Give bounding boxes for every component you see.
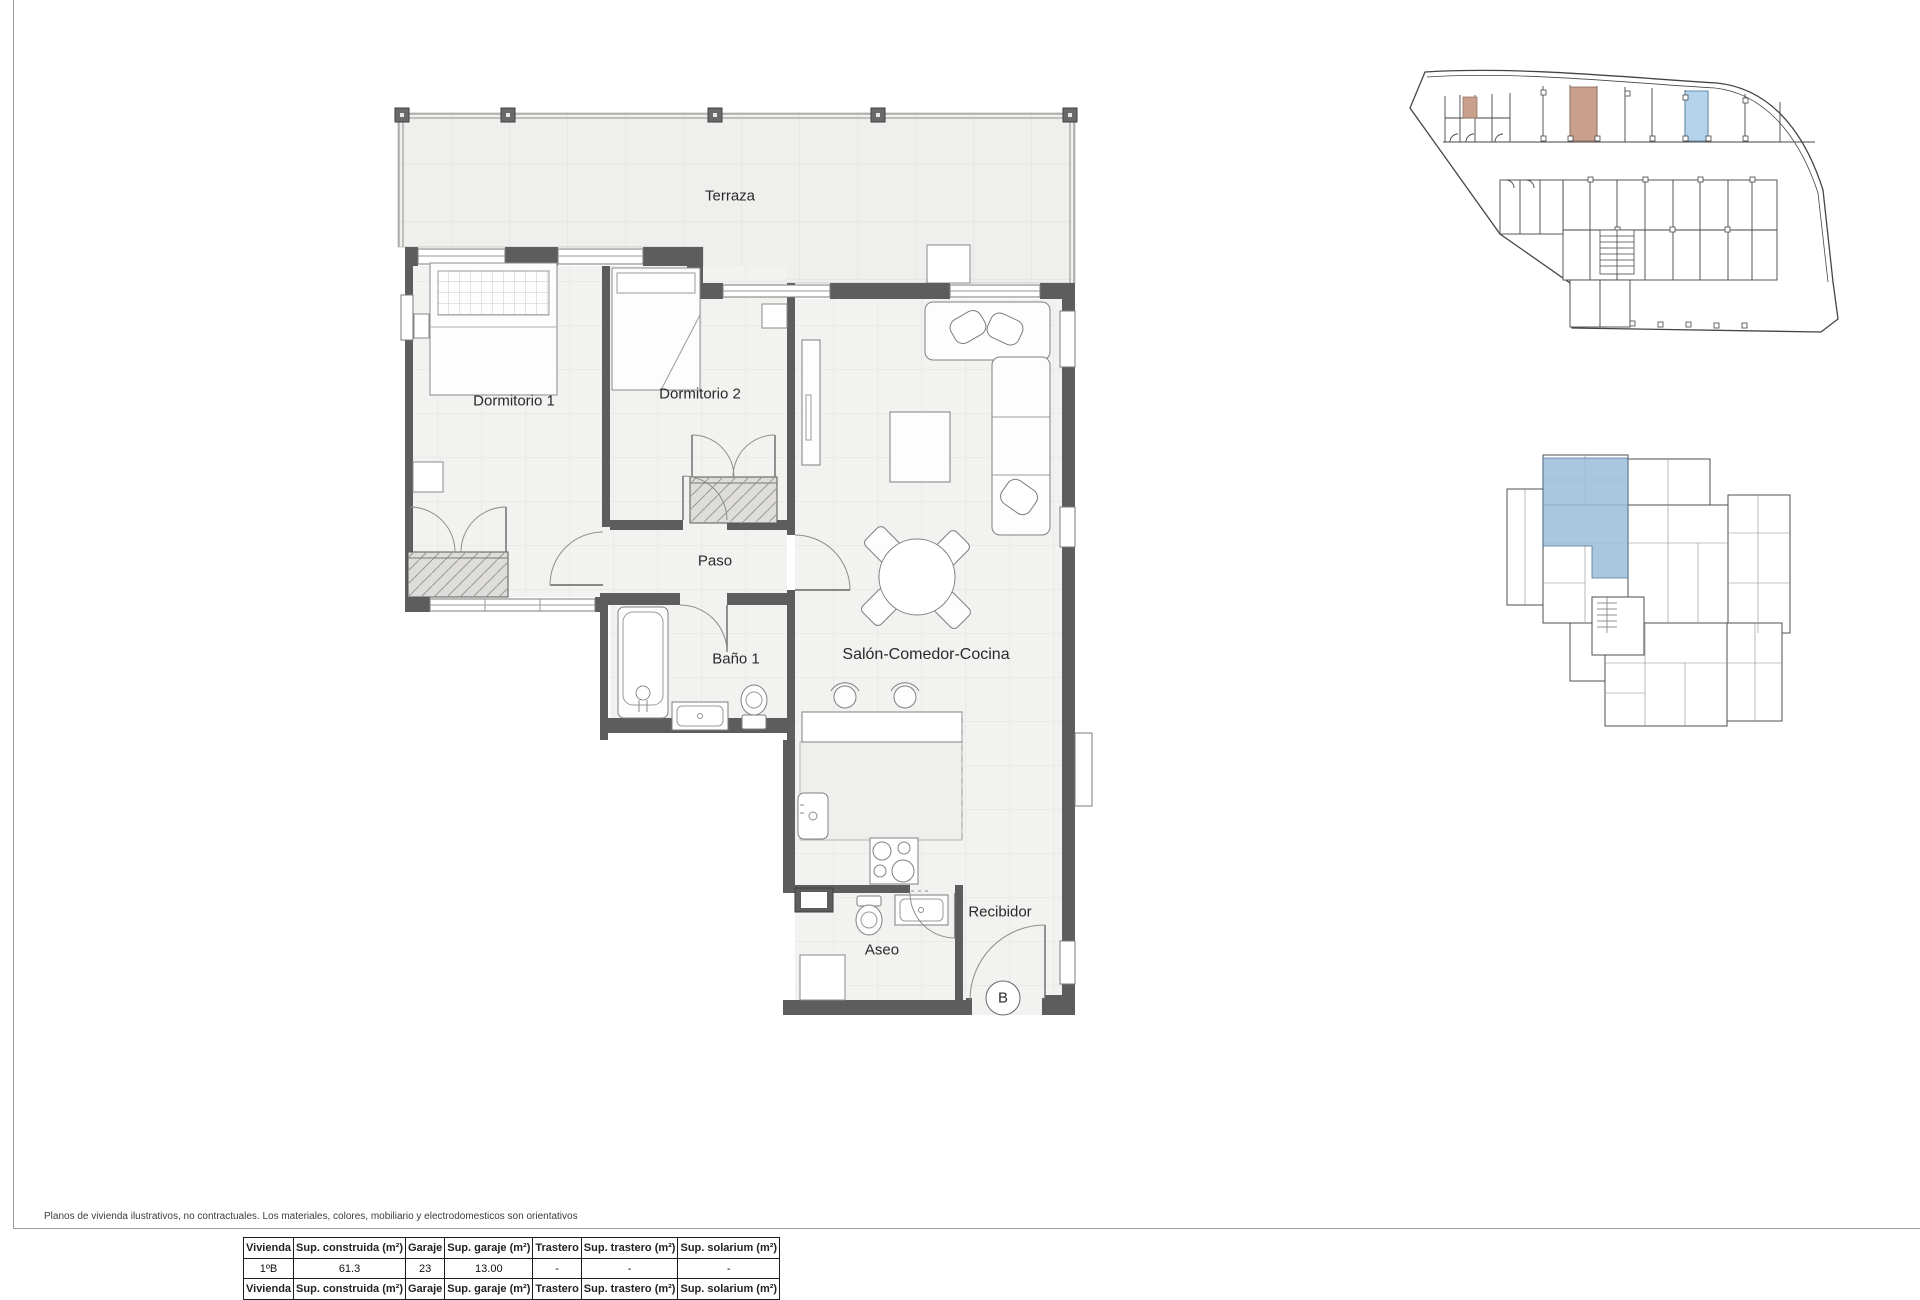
bath-sink xyxy=(672,702,728,730)
cell-vivienda: 1ºB xyxy=(244,1259,294,1279)
aseo-toilet xyxy=(856,896,882,935)
col2-garaje: Garaje xyxy=(406,1279,445,1300)
cooktop xyxy=(870,838,918,884)
tv-unit xyxy=(802,340,820,465)
label-dormitorio1: Dormitorio 1 xyxy=(473,393,555,410)
label-terraza: Terraza xyxy=(705,188,755,205)
garage-space-23-highlight xyxy=(1685,91,1708,141)
table-header-row-clipped: Vivienda Sup. construida (m²) Garaje Sup… xyxy=(244,1279,780,1300)
label-dormitorio2: Dormitorio 2 xyxy=(659,386,741,403)
garage-trastero-highlight xyxy=(1570,87,1597,141)
col2-trastero: Trastero xyxy=(533,1279,581,1300)
aseo-sink xyxy=(895,891,948,925)
sheet-frame-bottom xyxy=(13,1228,1920,1229)
dormitorio1-nightstand xyxy=(414,314,429,338)
dormitorio2-bed xyxy=(612,268,700,390)
col2-sup-solarium: Sup. solarium (m²) xyxy=(678,1279,780,1300)
cell-trastero: - xyxy=(533,1259,581,1279)
dormitorio2-nightstand xyxy=(762,304,787,328)
main-floor-plan: Terraza Dormitorio 1 Dormitorio 2 Paso B… xyxy=(393,105,1093,1045)
cell-sup-garaje: 13.00 xyxy=(445,1259,533,1279)
bathtub xyxy=(618,607,668,718)
coffee-table xyxy=(890,412,950,482)
col-garaje: Garaje xyxy=(406,1238,445,1259)
building-key-plan xyxy=(1495,447,1805,732)
cell-garaje: 23 xyxy=(406,1259,445,1279)
col2-vivienda: Vivienda xyxy=(244,1279,294,1300)
disclaimer-text: Planos de vivienda ilustrativos, no cont… xyxy=(44,1211,578,1222)
col-vivienda: Vivienda xyxy=(244,1238,294,1259)
garage-stairs xyxy=(1600,230,1634,274)
kitchen-sink xyxy=(798,793,828,839)
sheet-frame-left xyxy=(13,0,14,1229)
cell-sup-solarium: - xyxy=(678,1259,780,1279)
cell-sup-construida: 61.3 xyxy=(294,1259,406,1279)
terrace-pillar xyxy=(927,245,970,283)
col-trastero: Trastero xyxy=(533,1238,581,1259)
table-row: 1ºB 61.3 23 13.00 - - - xyxy=(244,1259,780,1279)
col-sup-trastero: Sup. trastero (m²) xyxy=(581,1238,678,1259)
col-sup-construida: Sup. construida (m²) xyxy=(294,1238,406,1259)
label-paso: Paso xyxy=(698,553,732,570)
col-sup-garaje: Sup. garaje (m²) xyxy=(445,1238,533,1259)
page: { "disclaimer": "Planos de vivienda ilus… xyxy=(0,0,1920,1280)
unit-marker-letter: B xyxy=(998,990,1008,1007)
label-salon: Salón-Comedor-Cocina xyxy=(842,646,1009,664)
garage-key-plan xyxy=(1400,62,1870,352)
surface-summary-table: Vivienda Sup. construida (m²) Garaje Sup… xyxy=(243,1237,780,1300)
label-recibidor: Recibidor xyxy=(968,904,1031,921)
label-aseo: Aseo xyxy=(865,942,899,959)
bath-toilet xyxy=(741,685,767,729)
col2-sup-garaje: Sup. garaje (m²) xyxy=(445,1279,533,1300)
cell-sup-trastero: - xyxy=(581,1259,678,1279)
col2-sup-trastero: Sup. trastero (m²) xyxy=(581,1279,678,1300)
keyplan-core xyxy=(1592,597,1644,655)
dormitorio1-side-table xyxy=(413,462,443,492)
dormitorio1-bed xyxy=(430,263,557,395)
col-sup-solarium: Sup. solarium (m²) xyxy=(678,1238,780,1259)
label-bano1: Baño 1 xyxy=(712,651,760,668)
table-header-row: Vivienda Sup. construida (m²) Garaje Sup… xyxy=(244,1238,780,1259)
garage-small-trastero-highlight xyxy=(1463,97,1477,118)
col2-sup-construida: Sup. construida (m²) xyxy=(294,1279,406,1300)
